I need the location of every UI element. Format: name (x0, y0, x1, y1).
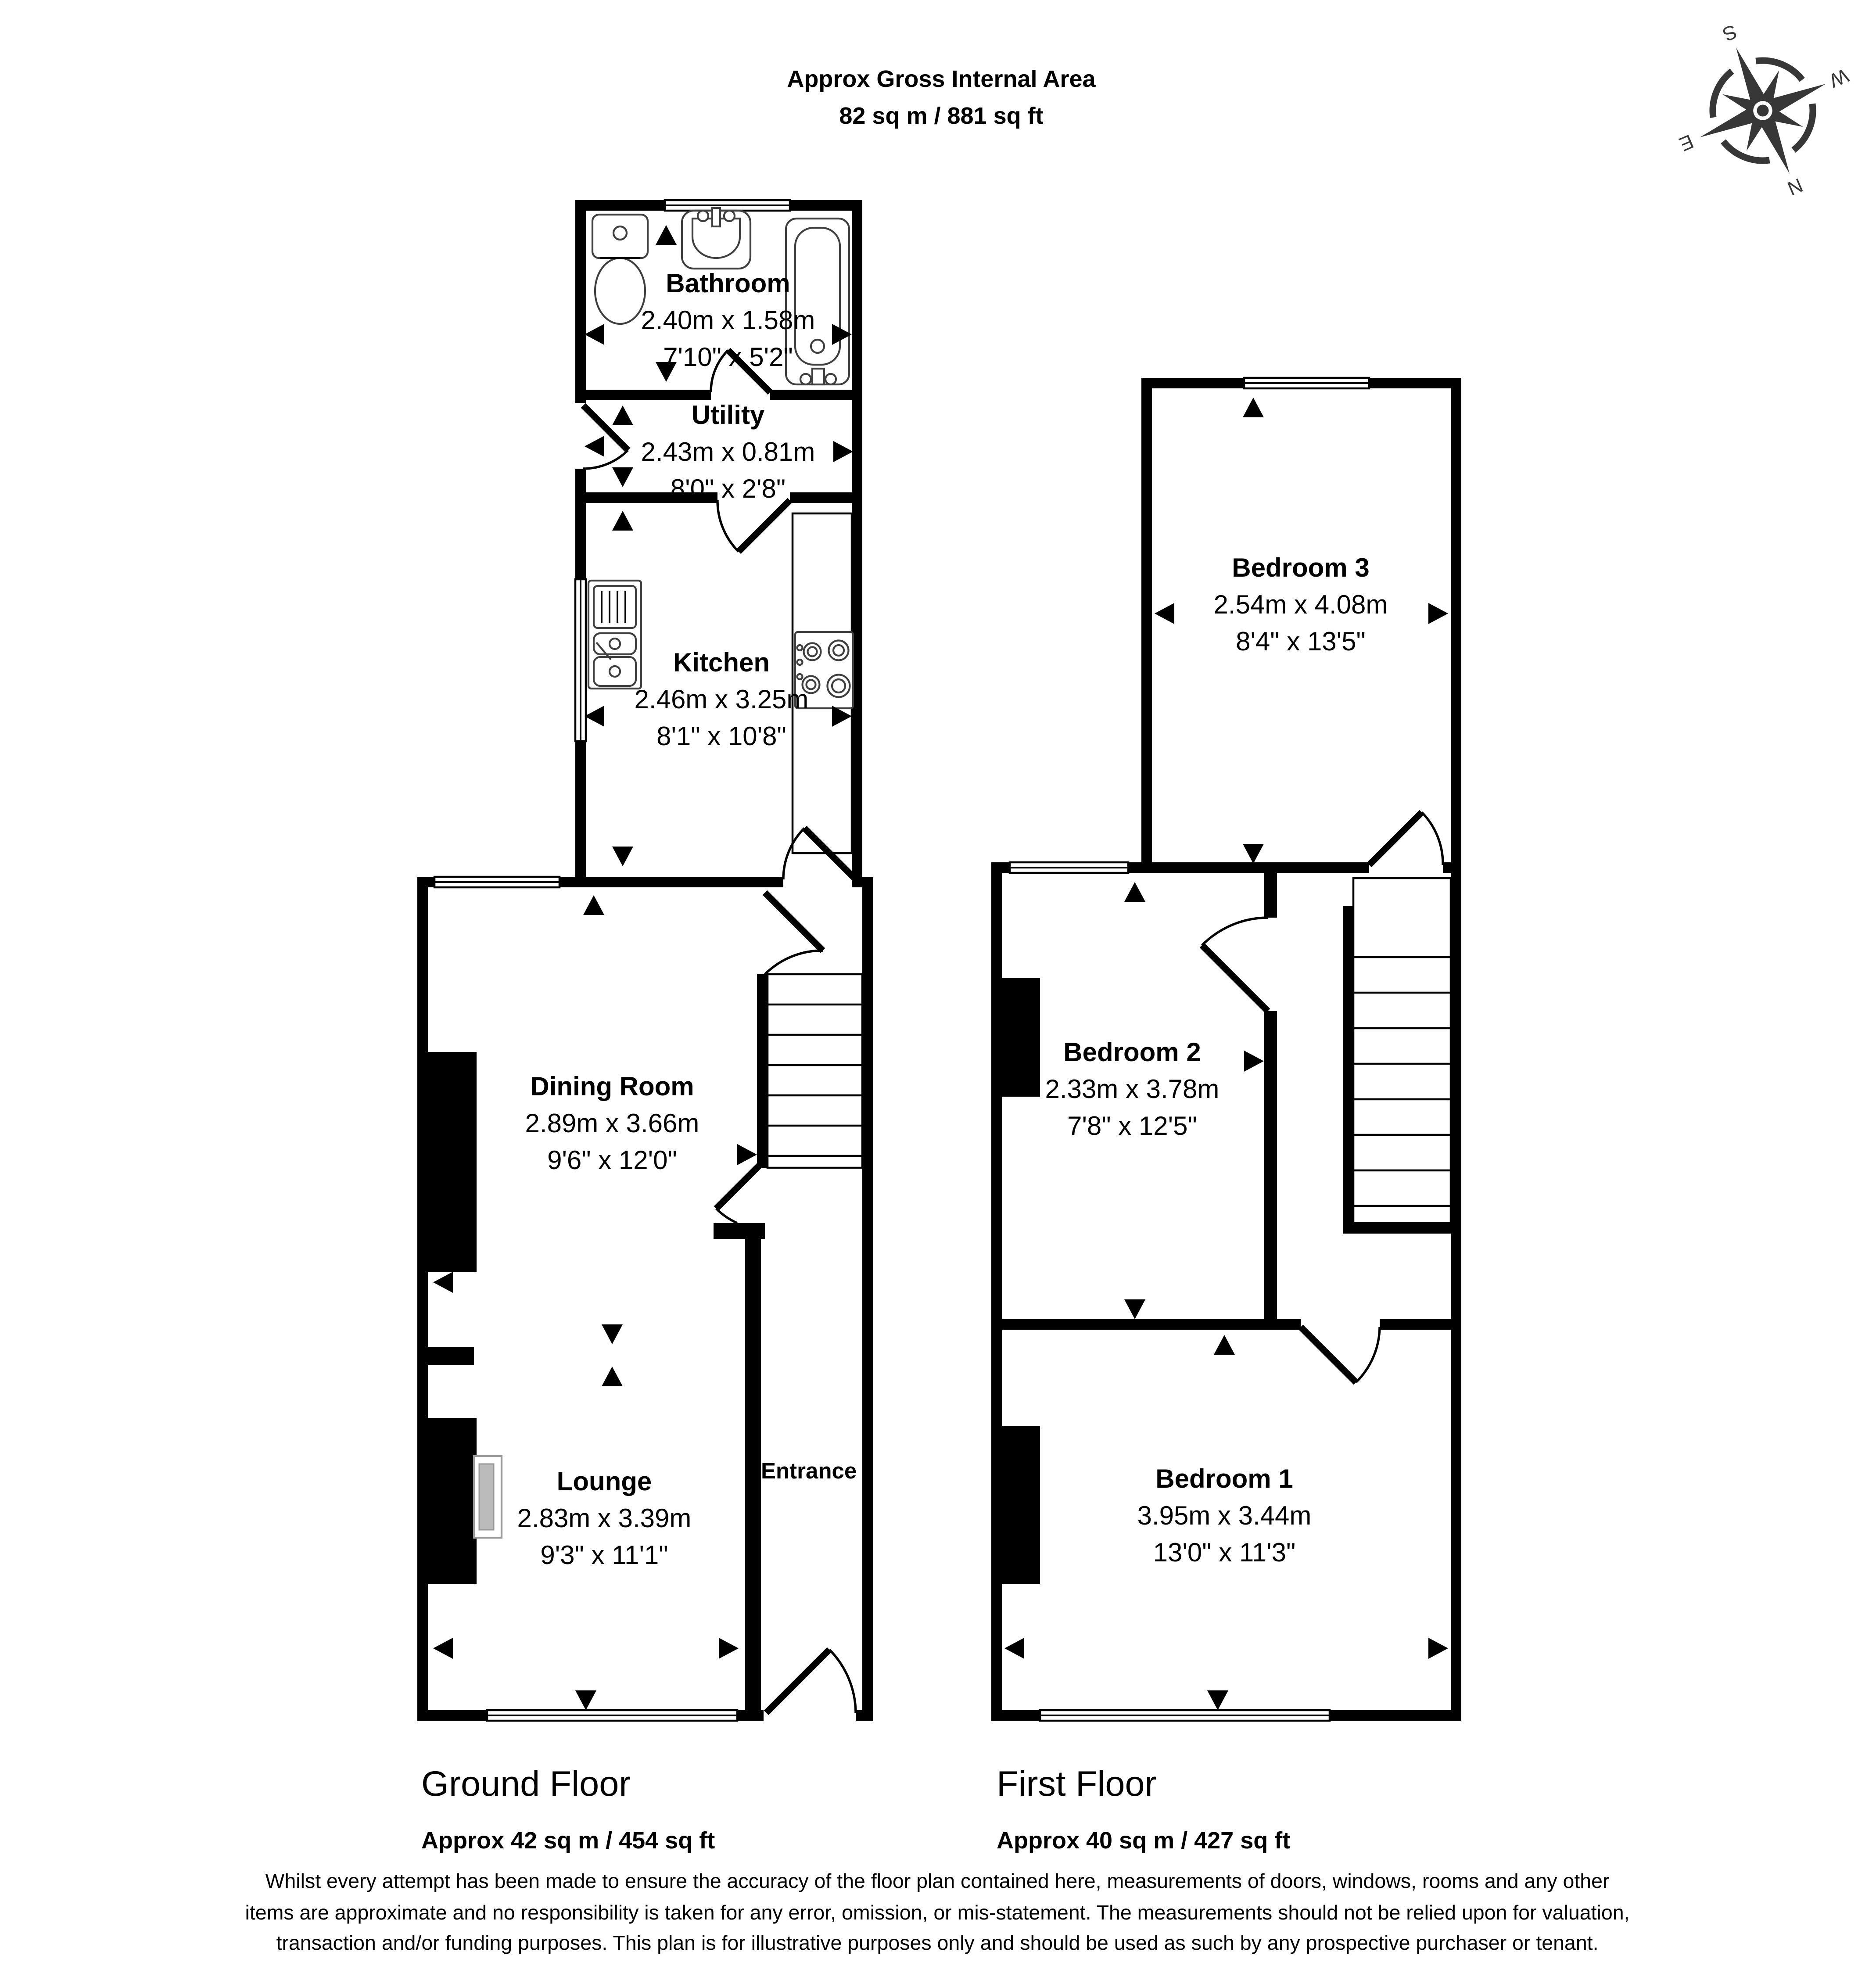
disclaimer-text: Whilst every attempt has been made to en… (240, 1867, 1635, 1960)
room-dims-metric: 2.54m x 4.08m (1156, 587, 1446, 624)
room-dims-metric: 2.89m x 3.66m (467, 1106, 757, 1143)
room-label-bedroom3: Bedroom 3 2.54m x 4.08m 8'4" x 13'5" (1156, 550, 1446, 661)
bedroom1-chimney-breast (1002, 1426, 1040, 1584)
first-floor-area: Approx 40 sq m / 427 sq ft (997, 1827, 1290, 1855)
lounge-window (487, 1710, 737, 1721)
front-door (766, 1650, 856, 1713)
compass-north-label: N (1784, 174, 1806, 200)
dining-window (434, 877, 560, 887)
room-name: Bedroom 2 (987, 1035, 1277, 1072)
bedroom1-door (1301, 1327, 1380, 1382)
room-name: Bedroom 1 (1080, 1461, 1369, 1498)
room-dims-imperial: 8'4" x 13'5" (1156, 624, 1446, 661)
room-dims-metric: 3.95m x 3.44m (1080, 1498, 1369, 1535)
floor-plan-drawing: N E S W (0, 0, 1876, 1984)
room-dims-imperial: 9'3" x 11'1" (459, 1538, 749, 1575)
measure-arrow-icon (1207, 1690, 1228, 1710)
measure-arrow-icon (575, 1690, 596, 1710)
measure-arrow-icon (1124, 1299, 1145, 1319)
room-dims-imperial: 7'8" x 12'5" (987, 1109, 1277, 1145)
room-name: Dining Room (467, 1069, 757, 1106)
bedroom2-door (1202, 918, 1268, 1011)
room-label-bedroom1: Bedroom 1 3.95m x 3.44m 13'0" x 11'3" (1080, 1461, 1369, 1572)
compass-west-label: W (1826, 64, 1852, 92)
room-dims-imperial: 9'6" x 12'0" (467, 1143, 757, 1180)
compass-rose-icon: N E S W (1643, 0, 1876, 232)
floor-plan-page: N E S W Approx Gross Internal Area 82 sq… (0, 0, 1876, 1984)
ground-floor-area: Approx 42 sq m / 454 sq ft (421, 1827, 715, 1855)
room-dims-metric: 2.83m x 3.39m (459, 1501, 749, 1538)
room-name: Lounge (459, 1464, 749, 1501)
measure-arrow-icon (656, 225, 677, 245)
room-label-lounge: Lounge 2.83m x 3.39m 9'3" x 11'1" (459, 1464, 749, 1575)
room-dims-imperial: 8'1" x 10'8" (577, 719, 866, 756)
gross-area-title: Approx Gross Internal Area (546, 61, 1336, 97)
measure-arrow-icon (1214, 1335, 1235, 1355)
room-dims-imperial: 13'0" x 11'3" (1080, 1535, 1369, 1572)
measure-arrow-icon (583, 895, 604, 915)
gross-area-value: 82 sq m / 881 sq ft (546, 97, 1336, 134)
measure-arrow-icon (602, 1324, 623, 1344)
measure-arrow-icon (1004, 1638, 1024, 1659)
measure-arrow-icon (1243, 398, 1264, 417)
ground-staircase (768, 974, 862, 1168)
room-name: Bedroom 3 (1156, 550, 1446, 587)
room-dims-imperial: 7'10" x 5'2" (583, 340, 873, 377)
compass-east-label: E (1676, 130, 1697, 156)
measure-arrow-icon (433, 1638, 453, 1659)
room-label-bathroom: Bathroom 2.40m x 1.58m 7'10" x 5'2" (583, 266, 873, 377)
measure-arrow-icon (719, 1638, 739, 1659)
compass-south-label: S (1719, 20, 1740, 46)
measure-arrow-icon (612, 847, 633, 866)
room-name: Utility (583, 398, 873, 434)
room-dims-metric: 2.33m x 3.78m (987, 1072, 1277, 1109)
bedroom1-window (1040, 1710, 1330, 1721)
measure-arrow-icon (602, 1367, 623, 1386)
entrance-label: Entrance (761, 1459, 869, 1485)
bedroom3-window (1244, 378, 1369, 388)
bathroom-window (665, 200, 790, 211)
room-label-bedroom2: Bedroom 2 2.33m x 3.78m 7'8" x 12'5" (987, 1035, 1277, 1145)
room-label-kitchen: Kitchen 2.46m x 3.25m 8'1" x 10'8" (577, 645, 866, 756)
first-floor-label: First Floor (997, 1764, 1157, 1805)
room-dims-imperial: 8'0" x 2'8" (583, 471, 873, 508)
room-dims-metric: 2.40m x 1.58m (583, 303, 873, 340)
measure-arrow-icon (1124, 882, 1145, 902)
measure-arrow-icon (433, 1272, 453, 1293)
room-dims-metric: 2.46m x 3.25m (577, 682, 866, 719)
bedroom3-door (1369, 812, 1443, 865)
basin-icon (682, 208, 750, 269)
bedroom2-window (1010, 862, 1128, 873)
first-staircase (1353, 878, 1451, 1223)
room-label-dining: Dining Room 2.89m x 3.66m 9'6" x 12'0" (467, 1069, 757, 1180)
measure-arrow-icon (612, 511, 633, 531)
room-name: Kitchen (577, 645, 866, 682)
measure-arrow-icon (1428, 1638, 1448, 1659)
room-name: Bathroom (583, 266, 873, 303)
measure-arrow-icon (1243, 844, 1264, 864)
room-dims-metric: 2.43m x 0.81m (583, 434, 873, 471)
page-title: Approx Gross Internal Area 82 sq m / 881… (546, 61, 1336, 134)
dining-landing-door (765, 893, 823, 974)
room-label-utility: Utility 2.43m x 0.81m 8'0" x 2'8" (583, 398, 873, 508)
ground-floor-label: Ground Floor (421, 1764, 631, 1805)
